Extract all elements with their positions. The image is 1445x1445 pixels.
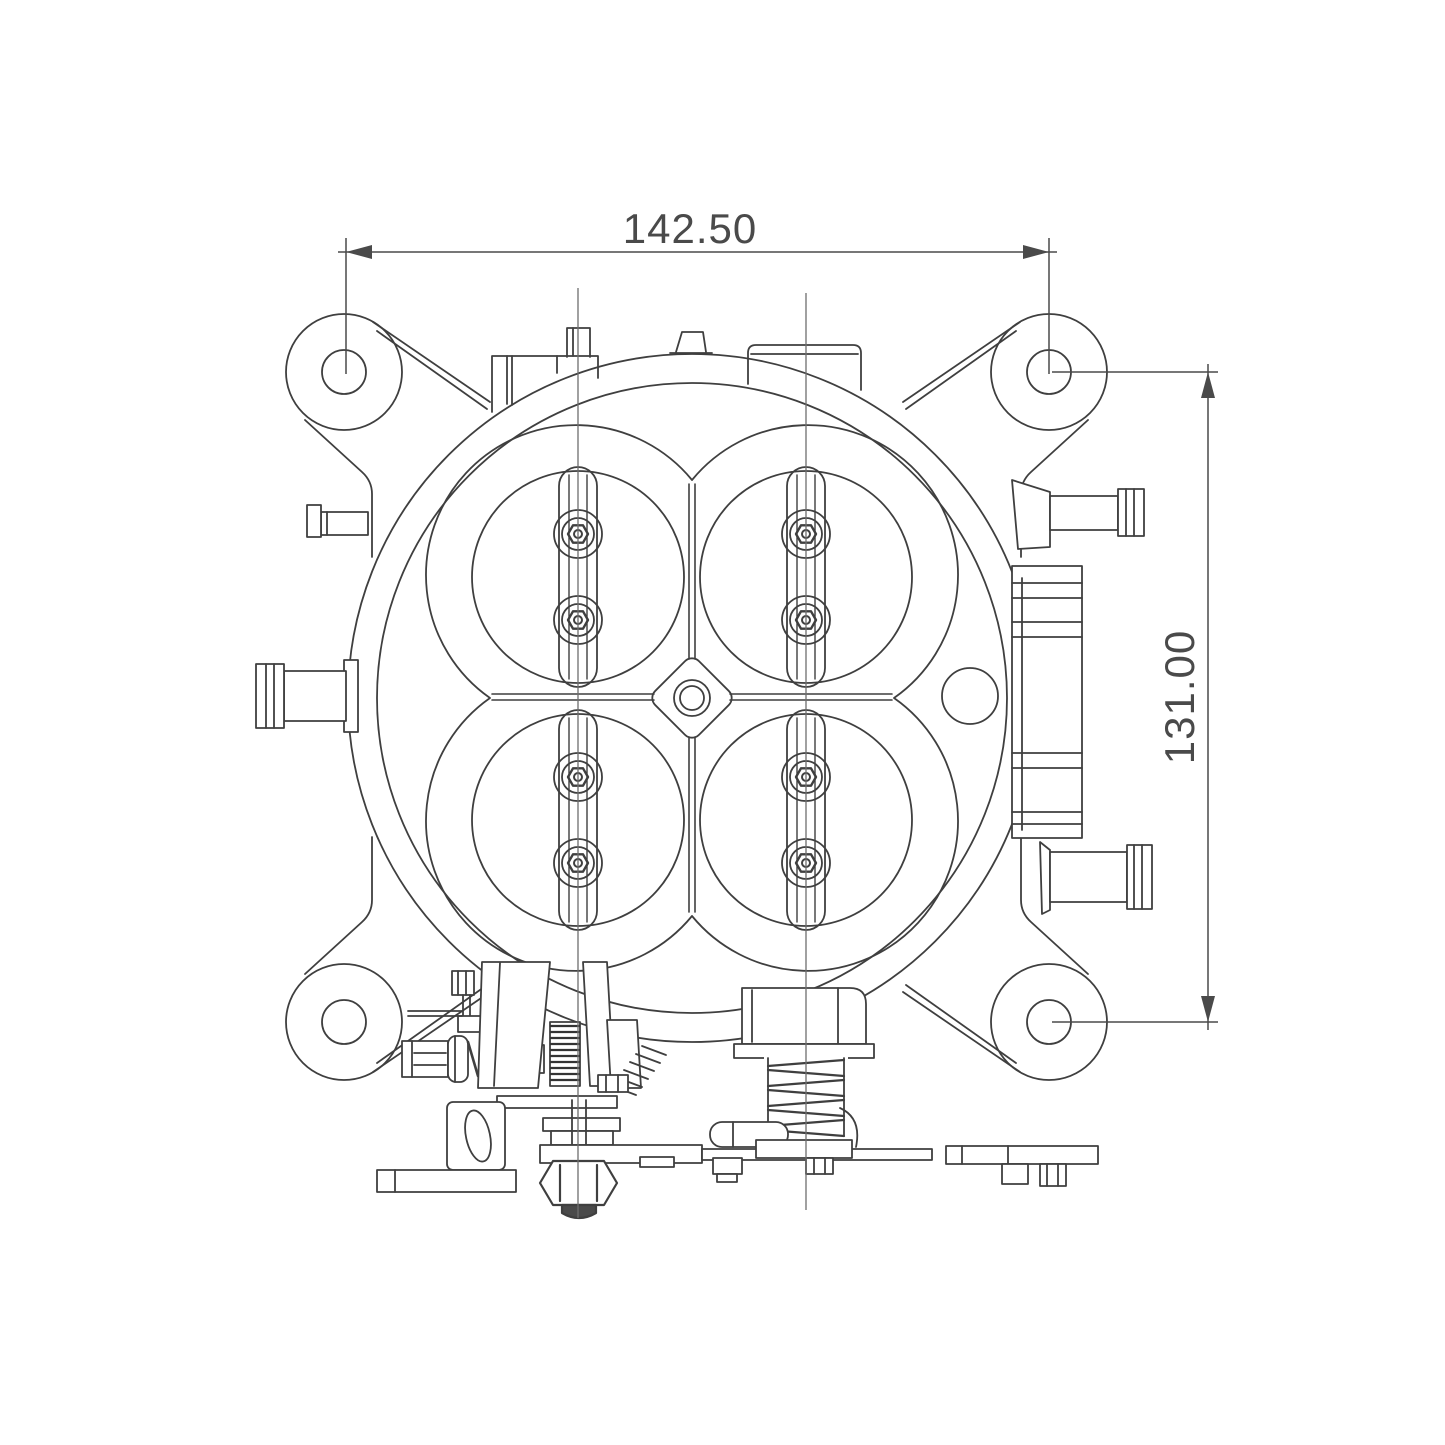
arrow-up-icon [1201,372,1215,398]
throttle-linkage [377,962,1098,1218]
throttle-body [256,314,1152,1080]
ribbed-block [1012,566,1082,838]
drawing-canvas: 142.50 131.00 [0,0,1445,1445]
arrow-down-icon [1201,996,1215,1022]
mounting-hole-top-left [322,350,366,394]
body-inner-flange [377,383,1007,1013]
dimension-annotations: 142.50 131.00 [338,205,1218,1030]
bore-clover-outline [426,425,958,971]
vacuum-port [942,668,998,724]
arrow-right-icon [1023,245,1049,259]
throttle-body-technical-drawing: 142.50 131.00 [0,0,1445,1445]
arrow-left-icon [346,245,372,259]
right-lever-plate [946,1146,1098,1186]
mounting-hole-bottom-left [322,1000,366,1044]
hose-barb-left-middle [256,660,358,732]
bore-divider-walls [492,484,892,912]
body-outer-flange [348,354,1036,1042]
dimension-width-text: 142.50 [623,205,757,252]
dimension-height-text: 131.00 [1156,630,1203,764]
center-idle-hub [648,654,736,742]
top-right-bar [748,345,861,390]
hose-barb-right-lower [1040,842,1152,914]
right-linkage-housing [734,988,874,1058]
shaft-end [562,1205,596,1218]
mounting-bracket-foot [377,1102,516,1192]
top-center-stub [676,332,706,352]
left-linkage-bracket [478,962,641,1088]
dimension-width: 142.50 [338,205,1057,374]
hose-barb-right-upper [1012,480,1144,549]
hose-barb-left-upper [307,505,368,537]
